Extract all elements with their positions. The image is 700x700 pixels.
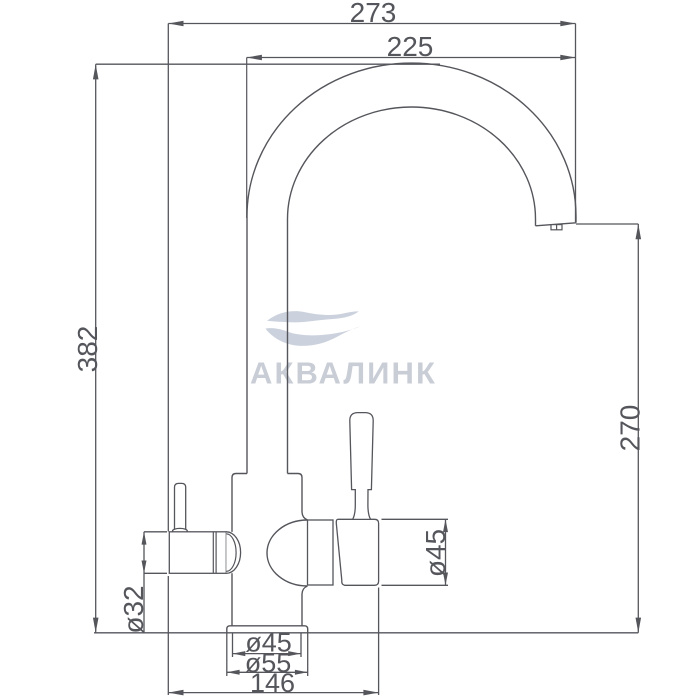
svg-text:382: 382 <box>72 326 103 373</box>
svg-text:225: 225 <box>387 31 434 62</box>
svg-text:146: 146 <box>250 668 295 698</box>
svg-text:270: 270 <box>614 405 645 452</box>
svg-text:АКВАЛИНК: АКВАЛИНК <box>250 356 437 391</box>
svg-text:273: 273 <box>350 0 397 28</box>
svg-text:ø45: ø45 <box>420 529 451 577</box>
svg-text:ø32: ø32 <box>118 585 149 633</box>
